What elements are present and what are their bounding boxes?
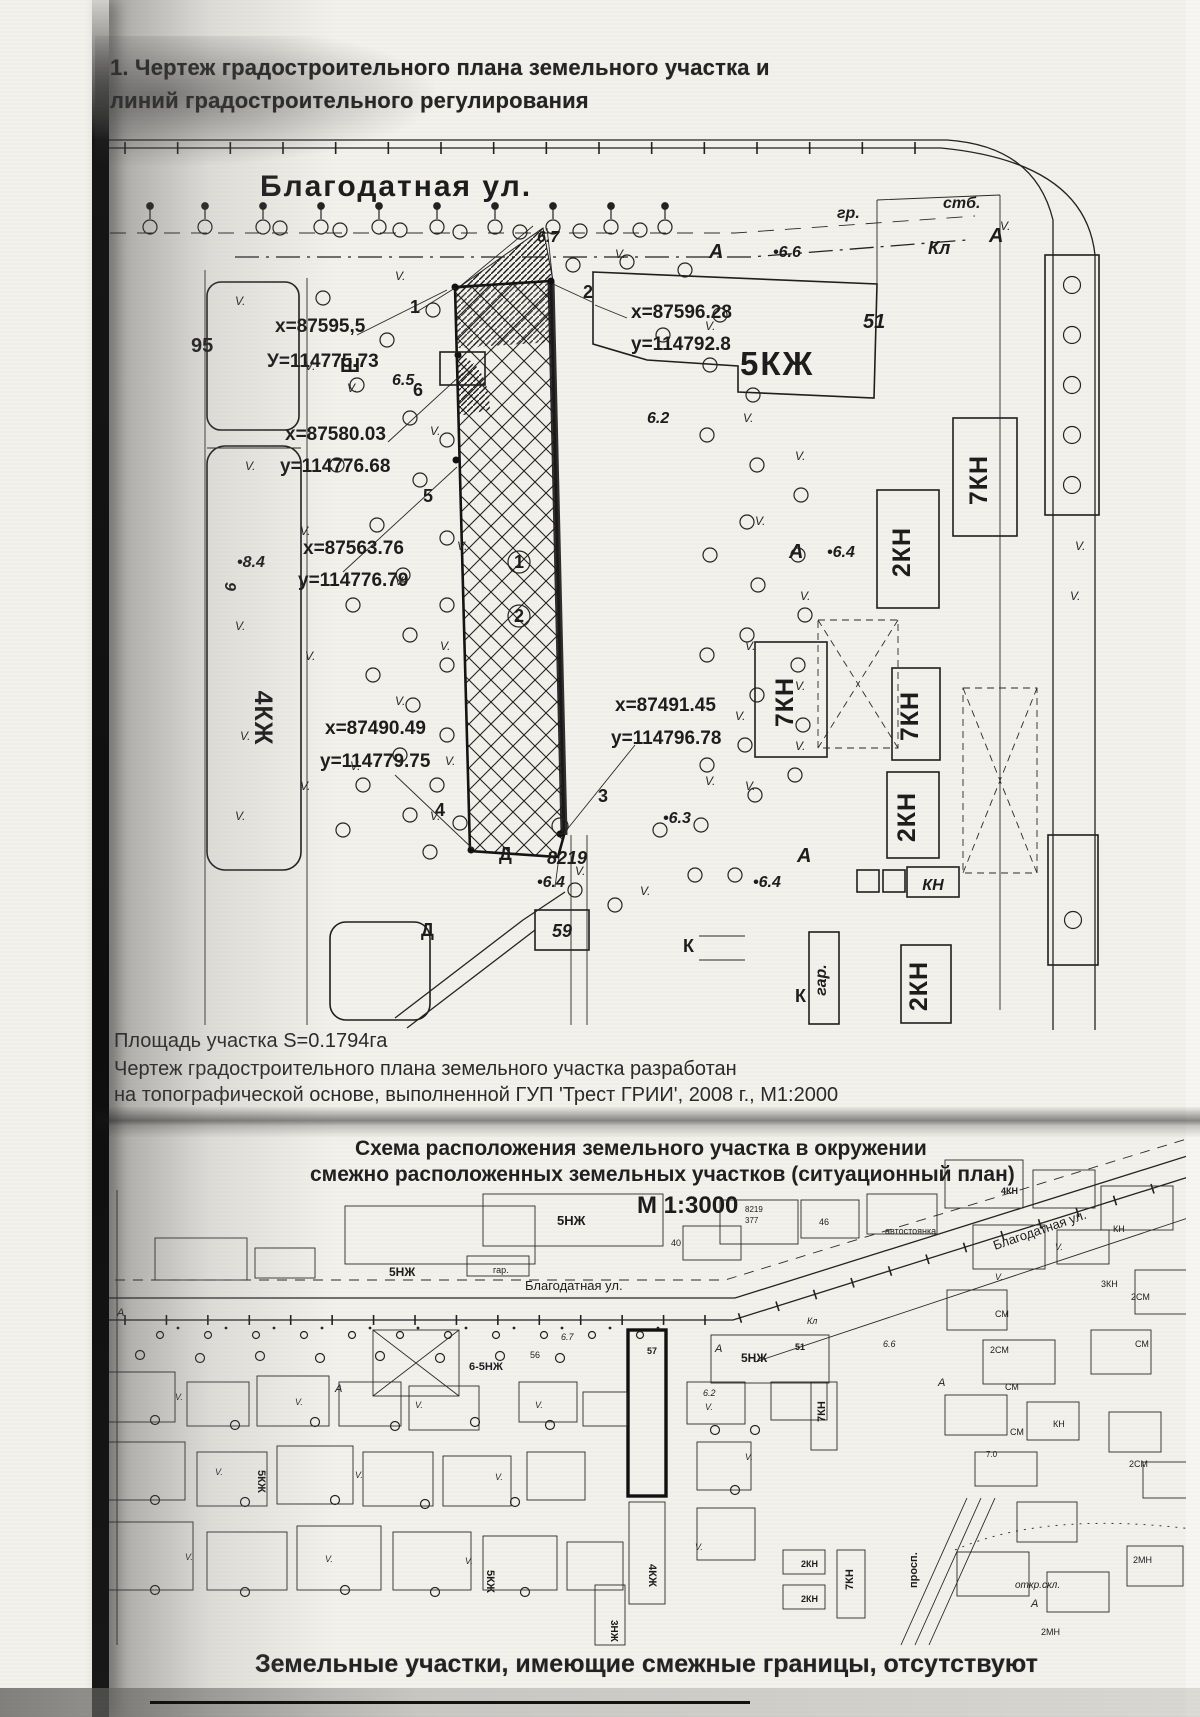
vegetation-symbol: V. bbox=[735, 709, 745, 723]
vegetation-symbol: V. bbox=[347, 381, 357, 395]
small-building bbox=[363, 1452, 433, 1506]
street-light-icon bbox=[314, 203, 328, 234]
parcel-circled-point-1: 1 bbox=[514, 552, 524, 572]
vegetation-symbol: V. bbox=[743, 411, 753, 425]
m2-2kn-2: 2КН bbox=[801, 1594, 818, 1604]
label-gar: гар. bbox=[813, 964, 830, 995]
m2-a-3: А bbox=[714, 1343, 722, 1355]
tree-icon bbox=[231, 1421, 240, 1430]
street-light-icon bbox=[430, 203, 444, 234]
tree-icon bbox=[241, 1498, 250, 1507]
coord-6-x: x=87580.03 bbox=[285, 424, 386, 445]
m2-parking: автостоянка bbox=[885, 1226, 936, 1236]
tree-icon bbox=[556, 1354, 565, 1363]
street-name-map1: Благодатная ул. bbox=[260, 170, 532, 203]
tree-icon bbox=[403, 628, 417, 642]
tree-icon bbox=[694, 818, 708, 832]
label-sh-symbol: Ш bbox=[340, 355, 360, 377]
tree-icon bbox=[738, 738, 752, 752]
tree-icon bbox=[366, 668, 380, 682]
label-9: 9 bbox=[221, 582, 238, 591]
tree-icon bbox=[436, 1354, 445, 1363]
street-dot bbox=[205, 1332, 212, 1339]
vegetation-symbol: V. bbox=[705, 1402, 713, 1412]
elevation-6-4a: •6.4 bbox=[827, 544, 855, 561]
tree-icon bbox=[566, 258, 580, 272]
building-label-kn: КН bbox=[922, 877, 944, 894]
street-name-horizontal: Благодатная ул. bbox=[525, 1278, 623, 1293]
street-dot bbox=[157, 1332, 164, 1339]
vegetation-symbol: V. bbox=[795, 449, 805, 463]
small-building bbox=[1091, 1330, 1151, 1374]
vegetation-symbol: V. bbox=[350, 759, 360, 773]
parcel-circled-point-2: 2 bbox=[514, 606, 524, 626]
street-dot bbox=[493, 1332, 500, 1339]
small-building bbox=[683, 1226, 741, 1260]
subject-parcel: 1 2 bbox=[452, 226, 569, 887]
tree-icon bbox=[750, 688, 764, 702]
m2-4kzh: 4КЖ bbox=[646, 1564, 658, 1587]
tree-icon bbox=[700, 758, 714, 772]
elevation-6-4c: •6.4 bbox=[537, 874, 565, 891]
vegetation-symbol: V. bbox=[745, 779, 755, 793]
m2-7-0: 7.0 bbox=[986, 1450, 998, 1459]
m2-5nzh-left: 5НЖ bbox=[389, 1265, 415, 1279]
parcel-number-57: 57 bbox=[647, 1346, 657, 1356]
small-building bbox=[1033, 1170, 1095, 1208]
m2-sm-4: СМ bbox=[1135, 1339, 1149, 1349]
label-a-1: А bbox=[708, 241, 723, 263]
vegetation-symbol: V. bbox=[457, 539, 467, 553]
vegetation-symbol: V. bbox=[295, 1397, 303, 1407]
tree-icon bbox=[440, 433, 454, 447]
elevation-6-6: •6.6 bbox=[773, 244, 801, 261]
street-dot bbox=[321, 1327, 324, 1330]
vegetation-symbol: V. bbox=[355, 1470, 363, 1480]
building-below-parcel bbox=[629, 1502, 665, 1604]
scan-bottom-line bbox=[150, 1701, 750, 1704]
tree-icon bbox=[440, 728, 454, 742]
tree-icon bbox=[728, 868, 742, 882]
tree-icon bbox=[336, 823, 350, 837]
small-building bbox=[297, 1526, 381, 1590]
label-51: 51 bbox=[863, 311, 885, 333]
vegetation-symbol: V. bbox=[1075, 539, 1085, 553]
right-margin bbox=[1186, 0, 1200, 1717]
label-59: 59 bbox=[552, 921, 572, 941]
building-label-2kn-1: 2КН bbox=[888, 527, 916, 577]
building-label-2kn-2: 2КН bbox=[893, 792, 921, 842]
vegetation-symbol: V. bbox=[395, 574, 405, 588]
vegetation-symbol: V. bbox=[640, 884, 650, 898]
coord-4-y: у=114779.75 bbox=[320, 751, 431, 772]
tree-icon bbox=[403, 808, 417, 822]
vegetation-symbol: V. bbox=[535, 1400, 543, 1410]
m2-3kn: 3КН bbox=[1101, 1279, 1118, 1289]
coord-5-x: x=87563.76 bbox=[303, 538, 404, 559]
vegetation-symbol: V. bbox=[1000, 219, 1010, 233]
street-dot bbox=[369, 1327, 372, 1330]
tree-icon bbox=[406, 698, 420, 712]
vegetation-symbol: V. bbox=[465, 1556, 473, 1566]
vegetation-symbol: V. bbox=[235, 294, 245, 308]
m2-2kn-1: 2КН bbox=[801, 1559, 818, 1569]
tree-icon bbox=[746, 388, 760, 402]
street-dot bbox=[301, 1332, 308, 1339]
m2-3nzh: 3НЖ bbox=[608, 1620, 619, 1643]
tree-icon bbox=[798, 608, 812, 622]
label-a-3: А bbox=[788, 541, 803, 563]
tree-icon bbox=[151, 1416, 160, 1425]
map2-scale: М 1:3000 bbox=[637, 1192, 738, 1220]
vegetation-symbol: V. bbox=[430, 809, 440, 823]
vegetation-symbol: V. bbox=[245, 459, 255, 473]
map2-header-line1: Схема расположения земельного участка в … bbox=[355, 1137, 927, 1161]
small-building bbox=[697, 1442, 751, 1490]
vegetation-symbol: V. bbox=[305, 359, 315, 373]
small-building bbox=[801, 1200, 859, 1238]
tree-icon bbox=[423, 845, 437, 859]
vegetation-symbol: V. bbox=[445, 754, 455, 768]
vegetation-symbol: V. bbox=[415, 1400, 423, 1410]
tree-icon bbox=[380, 333, 394, 347]
tree-icon bbox=[413, 473, 427, 487]
m2-5kzh-left: 5КЖ bbox=[255, 1470, 267, 1493]
street-light-icon bbox=[372, 203, 386, 234]
m2-5kzh-lower: 5КЖ bbox=[484, 1570, 496, 1593]
label-a-4: А bbox=[796, 845, 811, 867]
vegetation-symbol: V. bbox=[705, 319, 715, 333]
vegetation-symbol: V. bbox=[305, 649, 315, 663]
tree-icon bbox=[370, 518, 384, 532]
m2-5nzh-right: 5НЖ bbox=[741, 1351, 767, 1365]
small-building bbox=[567, 1542, 623, 1590]
tree-icon bbox=[431, 1588, 440, 1597]
tree-icon bbox=[241, 1588, 250, 1597]
tree-icon bbox=[136, 1351, 145, 1360]
m2-8219: 8219 bbox=[745, 1205, 763, 1214]
tree-icon bbox=[346, 598, 360, 612]
point-number-5: 5 bbox=[423, 486, 433, 506]
small-building bbox=[687, 1382, 745, 1424]
tree-icon bbox=[426, 303, 440, 317]
label-k-2: К bbox=[795, 986, 807, 1006]
street-light-icon bbox=[658, 203, 672, 234]
tree-icon bbox=[496, 1352, 505, 1361]
small-building bbox=[207, 1532, 287, 1590]
tree-icon bbox=[568, 883, 582, 897]
tree-icon bbox=[703, 548, 717, 562]
tree-icon bbox=[316, 291, 330, 305]
small-building bbox=[345, 1206, 535, 1264]
document-title-line1: 1. Чертеж градостроительного плана земел… bbox=[110, 55, 770, 81]
street-dot bbox=[561, 1327, 564, 1330]
tree-icon bbox=[633, 223, 647, 237]
small-building bbox=[155, 1238, 247, 1280]
vegetation-symbol: V. bbox=[395, 269, 405, 283]
vegetation-symbol: V. bbox=[1070, 589, 1080, 603]
vegetation-symbol: V. bbox=[745, 1452, 753, 1462]
tree-icon bbox=[471, 1418, 480, 1427]
vegetation-symbol: V. bbox=[300, 779, 310, 793]
street-light-icon bbox=[488, 203, 502, 234]
tree-icon bbox=[521, 1588, 530, 1597]
m2-e62: 6.2 bbox=[703, 1388, 716, 1398]
vegetation-symbol: V. bbox=[705, 774, 715, 788]
small-building bbox=[975, 1452, 1037, 1486]
street-light-icon bbox=[143, 203, 157, 234]
small-building bbox=[527, 1452, 585, 1500]
point-number-6: 6 bbox=[413, 380, 423, 400]
m2-sm-2: СМ bbox=[1005, 1382, 1019, 1392]
elevation-6-5: 6.5 bbox=[392, 372, 415, 389]
street-dot bbox=[445, 1332, 452, 1339]
m2-sm-3: СМ bbox=[1010, 1427, 1024, 1437]
coord-1-x: х=87595,5 bbox=[275, 316, 366, 337]
tree-icon bbox=[751, 1426, 760, 1435]
small-building bbox=[1017, 1502, 1077, 1542]
label-d-1: Д bbox=[499, 844, 512, 864]
vegetation-symbol: V. bbox=[745, 639, 755, 653]
tree-icon bbox=[256, 1352, 265, 1361]
scan-edge-strip bbox=[92, 0, 109, 1717]
vegetation-symbol: V. bbox=[800, 589, 810, 603]
m2-7kn-lower: 7КН bbox=[844, 1569, 856, 1590]
street-dot bbox=[397, 1332, 404, 1339]
tree-icon bbox=[440, 598, 454, 612]
m2-2mn-2: 2МН bbox=[1133, 1555, 1152, 1565]
small-building bbox=[583, 1392, 627, 1426]
tree-icon bbox=[751, 578, 765, 592]
tree-icon bbox=[403, 411, 417, 425]
building-label-7kn-3: 7КН bbox=[896, 691, 924, 741]
tree-icon bbox=[573, 224, 587, 238]
m2-51: 51 bbox=[795, 1342, 805, 1352]
elevation-6-4b: •6.4 bbox=[753, 874, 781, 891]
elevation-6-2: 6.2 bbox=[647, 410, 669, 427]
m2-377: 377 bbox=[745, 1216, 759, 1225]
tree-icon bbox=[700, 428, 714, 442]
m2-2mn-1: 2МН bbox=[1041, 1627, 1060, 1637]
map1-caption-line3: на топографической основе, выполненной Г… bbox=[114, 1084, 838, 1107]
m2-7kn-right: 7КН bbox=[816, 1401, 828, 1422]
small-building bbox=[277, 1446, 353, 1504]
label-kl: Кл bbox=[928, 238, 950, 258]
m2-a-4: А bbox=[937, 1377, 945, 1389]
street-dot bbox=[253, 1332, 260, 1339]
vegetation-symbol: V. bbox=[440, 639, 450, 653]
m2-a-1: А bbox=[116, 1307, 124, 1319]
street-dot bbox=[177, 1327, 180, 1330]
building-label-5kzh: 5КЖ bbox=[740, 345, 814, 382]
small-building bbox=[697, 1508, 755, 1560]
vegetation-symbol: V. bbox=[185, 1552, 193, 1562]
coord-3-y: у=114796.78 bbox=[611, 728, 721, 749]
tree-icon bbox=[688, 868, 702, 882]
street-light-icon bbox=[198, 203, 212, 234]
street-dot bbox=[637, 1332, 644, 1339]
tree-icon bbox=[788, 768, 802, 782]
street-dot bbox=[589, 1332, 596, 1339]
coord-4-x: x=87490.49 bbox=[325, 718, 426, 739]
tree-icon bbox=[430, 778, 444, 792]
m2-gar: гар. bbox=[493, 1265, 509, 1275]
small-building bbox=[103, 1522, 193, 1590]
parcel-area-caption: Площадь участка S=0.1794га bbox=[114, 1030, 387, 1053]
building-label-7kn-1: 7КН bbox=[965, 455, 993, 505]
small-building bbox=[1109, 1412, 1161, 1452]
m2-46: 46 bbox=[819, 1217, 829, 1227]
coord-6-y: у=114776.68 bbox=[280, 456, 390, 477]
coord-2-y: y=114792.8 bbox=[631, 334, 731, 355]
map1-caption-line2: Чертеж градостроительного плана земельно… bbox=[114, 1058, 737, 1081]
small-building bbox=[1143, 1462, 1187, 1498]
tree-icon bbox=[511, 1498, 520, 1507]
street-dot bbox=[609, 1327, 612, 1330]
point-number-1: 1 bbox=[410, 297, 420, 317]
coord-3-x: x=87491.45 bbox=[615, 695, 716, 716]
m2-sm-1: СМ bbox=[995, 1309, 1009, 1319]
tree-icon bbox=[653, 823, 667, 837]
street-dot bbox=[349, 1332, 356, 1339]
small-building bbox=[103, 1442, 185, 1500]
tree-icon bbox=[331, 1496, 340, 1505]
building-label-4kzh: 4КЖ bbox=[249, 691, 277, 746]
footer-caption: Земельные участки, имеющие смежные грани… bbox=[255, 1650, 1038, 1679]
vegetation-symbol: V. bbox=[215, 1467, 223, 1477]
tree-icon bbox=[453, 225, 467, 239]
m2-kl: Кл bbox=[807, 1316, 817, 1326]
tree-icon bbox=[791, 658, 805, 672]
tree-icon bbox=[333, 223, 347, 237]
vegetation-symbol: V. bbox=[240, 729, 250, 743]
m2-4kn: 4КН bbox=[1001, 1186, 1018, 1196]
m2-a-5: А bbox=[1030, 1598, 1038, 1610]
vegetation-symbol: V. bbox=[235, 619, 245, 633]
small-building bbox=[103, 1372, 175, 1422]
street-dots-map2 bbox=[157, 1327, 660, 1339]
small-building bbox=[187, 1382, 249, 1426]
tree-icon bbox=[700, 648, 714, 662]
vegetation-symbol: V. bbox=[325, 1554, 333, 1564]
elevation-6-7: 6.7 bbox=[537, 229, 560, 246]
m2-2sm-2: 2СМ bbox=[1129, 1459, 1148, 1469]
coord-2-x: x=87596.28 bbox=[631, 302, 732, 323]
vegetation-symbol: V. bbox=[495, 1472, 503, 1482]
label-k-1: К bbox=[683, 936, 695, 956]
tree-icon bbox=[678, 263, 692, 277]
tree-icon bbox=[711, 1426, 720, 1435]
street-dot bbox=[541, 1332, 548, 1339]
vegetation-symbol: V. bbox=[235, 809, 245, 823]
point-number-3: 3 bbox=[598, 786, 608, 806]
small-building bbox=[1047, 1572, 1109, 1612]
m2-kn-top: КН bbox=[1113, 1224, 1125, 1234]
small-building bbox=[711, 1335, 829, 1383]
map2-header-line2: смежно расположенных земельных участков … bbox=[310, 1163, 1015, 1187]
scanned-document-page: 1. Чертеж градостроительного плана земел… bbox=[0, 0, 1200, 1717]
small-building bbox=[339, 1382, 401, 1426]
m2-e67: 6.7 bbox=[561, 1332, 575, 1342]
m2-6-5nzh: 6-5НЖ bbox=[469, 1361, 503, 1373]
street-dot bbox=[657, 1327, 660, 1330]
vegetation-symbol: V. bbox=[395, 694, 405, 708]
vegetation-symbol: V. bbox=[695, 1542, 703, 1552]
m2-kn-right: КН bbox=[1053, 1419, 1065, 1429]
m2-a-2: А bbox=[334, 1383, 342, 1395]
vegetation-symbol: V. bbox=[175, 1392, 183, 1402]
vegetation-symbol: V. bbox=[575, 864, 585, 878]
label-95: 95 bbox=[191, 335, 213, 357]
coord-1-y: У=114775.73 bbox=[267, 351, 379, 372]
building-label-2kn-3: 2КН bbox=[905, 961, 933, 1011]
street-light-icon bbox=[604, 203, 618, 234]
vegetation-symbol: V. bbox=[430, 424, 440, 438]
tree-icon bbox=[440, 658, 454, 672]
small-building bbox=[519, 1382, 577, 1422]
site-plan-map-1-2000: Благодатная ул. 1 bbox=[95, 130, 1200, 1035]
tree-icon bbox=[311, 1418, 320, 1427]
vegetation-symbol: V. bbox=[615, 247, 625, 261]
vegetation-symbol: V. bbox=[795, 679, 805, 693]
vegetation-symbol: V. bbox=[995, 1272, 1003, 1282]
elevation-6-3: •6.3 bbox=[663, 810, 691, 827]
m2-40: 40 bbox=[671, 1238, 681, 1248]
street-dot bbox=[417, 1327, 420, 1330]
m2-5nzh-top: 5НЖ bbox=[557, 1213, 586, 1228]
m2-56: 56 bbox=[530, 1350, 540, 1360]
street-dot bbox=[225, 1327, 228, 1330]
point-number-2: 2 bbox=[583, 282, 593, 302]
label-d-2: Д bbox=[421, 920, 434, 940]
vegetation-symbol: V. bbox=[300, 524, 310, 538]
m2-e66: 6.6 bbox=[883, 1339, 896, 1349]
street-light-icon bbox=[256, 203, 270, 234]
tree-icon bbox=[794, 488, 808, 502]
m2-2sm-3: 2СМ bbox=[1131, 1292, 1150, 1302]
small-building bbox=[393, 1532, 471, 1590]
coord-5-y: у=114776.79 bbox=[298, 570, 408, 591]
tree-icon bbox=[740, 515, 754, 529]
tree-icon bbox=[196, 1354, 205, 1363]
m2-okr-skl: откр.скл. bbox=[1015, 1580, 1060, 1591]
m2-2sm-1: 2СМ bbox=[990, 1345, 1009, 1355]
tree-icon bbox=[453, 816, 467, 830]
small-building bbox=[945, 1395, 1007, 1435]
vegetation-symbol: V. bbox=[755, 514, 765, 528]
elevation-8-4: •8.4 bbox=[237, 554, 265, 571]
small-building bbox=[255, 1248, 315, 1278]
vegetation-symbol: V. bbox=[1055, 1242, 1063, 1252]
tree-icon bbox=[393, 223, 407, 237]
m2-prospekt: просп. bbox=[908, 1552, 920, 1588]
tree-icon bbox=[608, 898, 622, 912]
vegetation-symbol: V. bbox=[795, 739, 805, 753]
small-building bbox=[1127, 1546, 1183, 1586]
street-dot bbox=[273, 1327, 276, 1330]
document-title-line2: линий градостроительного регулирования bbox=[110, 88, 589, 114]
label-stb: стб. bbox=[943, 195, 980, 212]
tree-icon bbox=[316, 1354, 325, 1363]
tree-icon bbox=[750, 458, 764, 472]
tree-icon bbox=[356, 778, 370, 792]
street-dot bbox=[465, 1327, 468, 1330]
street-dot bbox=[513, 1327, 516, 1330]
tree-icon bbox=[421, 1500, 430, 1509]
tree-icon bbox=[376, 1352, 385, 1361]
tree-icon bbox=[440, 531, 454, 545]
label-gr: гр. bbox=[837, 205, 860, 222]
